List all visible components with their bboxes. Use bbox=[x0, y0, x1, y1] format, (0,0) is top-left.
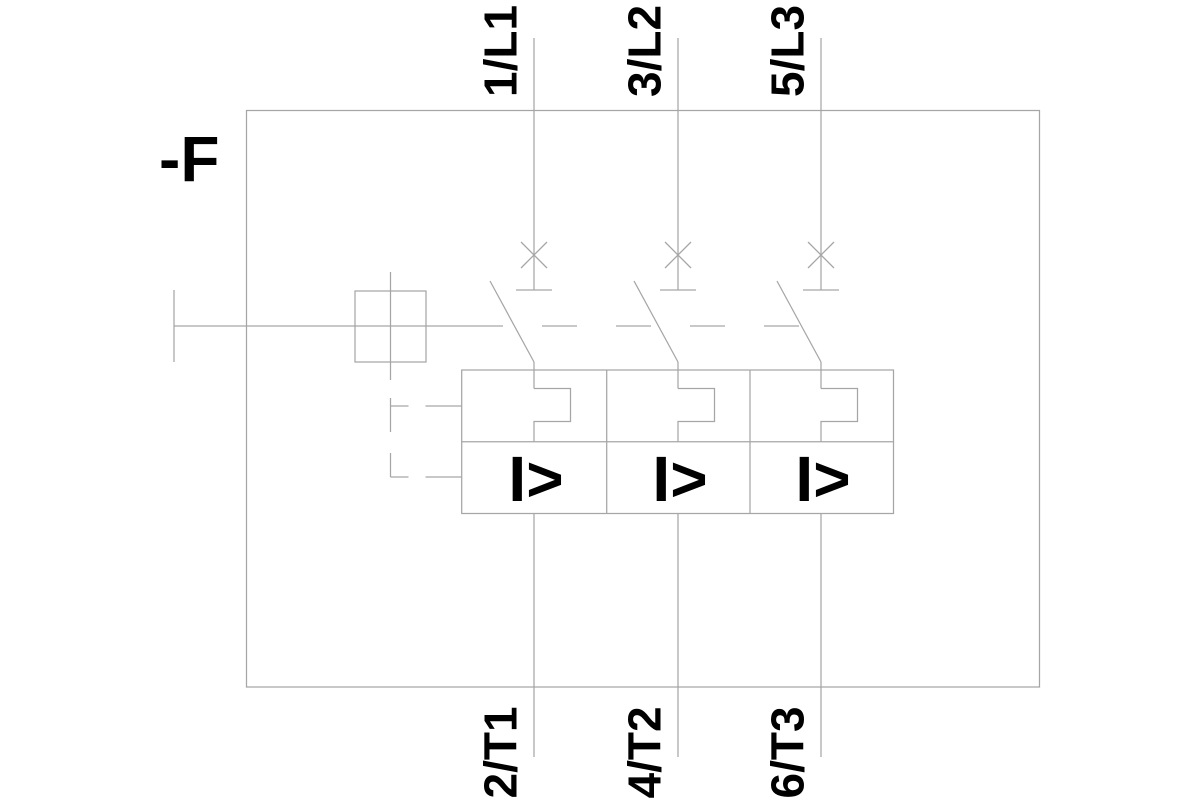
pole-2-thermal-release-icon bbox=[678, 389, 715, 443]
pole-2-top-terminal-label: 3/L2 bbox=[619, 5, 671, 97]
pole-3-thermal-release-icon bbox=[821, 389, 858, 443]
pole-2-overcurrent-release-label: I> bbox=[652, 443, 707, 515]
pole-3-overcurrent-release-label: I> bbox=[795, 443, 850, 515]
pole-3: 5/L3 6/T3 I> bbox=[762, 5, 858, 799]
pole-1-bottom-terminal-label: 2/T1 bbox=[475, 706, 527, 798]
pole-3-contact-blade bbox=[777, 281, 821, 362]
enclosure-outline bbox=[247, 111, 1040, 688]
pole-2-contact-blade bbox=[634, 281, 678, 362]
pole-1-contact-blade bbox=[490, 281, 534, 362]
pole-3-top-terminal-label: 5/L3 bbox=[762, 5, 814, 97]
circuit-breaker-schematic: -F 1/L1 2/T1 I> bbox=[0, 0, 1200, 800]
pole-1-overcurrent-release-label: I> bbox=[508, 443, 563, 515]
pole-2-bottom-terminal-label: 4/T2 bbox=[619, 706, 671, 798]
device-designation-label: -F bbox=[159, 123, 219, 195]
pole-3-bottom-terminal-label: 6/T3 bbox=[762, 706, 814, 798]
pole-2: 3/L2 4/T2 I> bbox=[619, 5, 715, 799]
operating-mechanism bbox=[174, 272, 802, 477]
pole-1-top-terminal-label: 1/L1 bbox=[475, 5, 527, 97]
pole-1-thermal-release-icon bbox=[534, 389, 571, 443]
schematic-canvas: -F 1/L1 2/T1 I> bbox=[0, 0, 1200, 800]
pole-1: 1/L1 2/T1 I> bbox=[475, 5, 571, 799]
